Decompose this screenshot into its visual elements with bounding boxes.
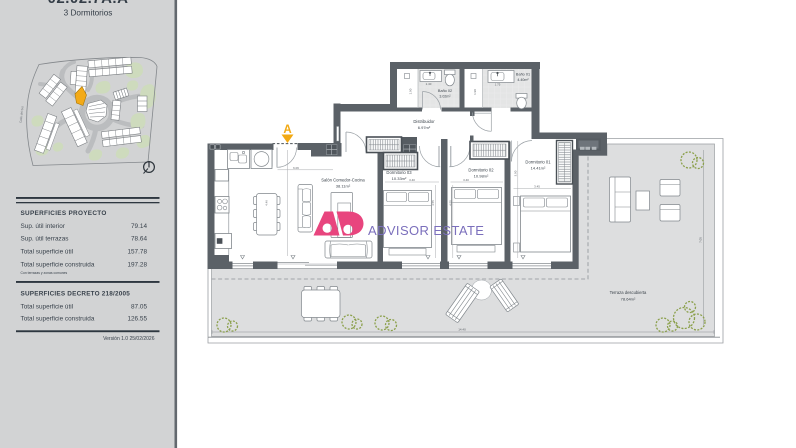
svg-text:3.40: 3.40 — [463, 178, 469, 182]
svg-text:7.05: 7.05 — [699, 237, 703, 243]
svg-text:Dormitorio 02: Dormitorio 02 — [468, 168, 494, 173]
svg-text:Dormitorio 03: Dormitorio 03 — [386, 170, 412, 175]
svg-text:Versión 1.0 25/02/2026: Versión 1.0 25/02/2026 — [103, 336, 155, 342]
svg-text:14.41m²: 14.41m² — [531, 166, 546, 171]
svg-text:Total superficie construida: Total superficie construida — [21, 262, 95, 269]
svg-text:126.55: 126.55 — [127, 316, 147, 323]
svg-text:3.45: 3.45 — [534, 185, 540, 189]
svg-text:Baño 01: Baño 01 — [516, 73, 530, 77]
svg-text:A: A — [283, 124, 291, 136]
svg-text:1.90: 1.90 — [409, 88, 413, 94]
svg-text:4.55: 4.55 — [449, 200, 453, 206]
svg-text:4.46: 4.46 — [265, 200, 269, 206]
svg-text:Total superficie útil: Total superficie útil — [21, 304, 74, 311]
svg-text:6.97m²: 6.97m² — [418, 125, 431, 130]
svg-text:SUPERFICIES PROYECTO: SUPERFICIES PROYECTO — [21, 210, 107, 217]
svg-text:79.14: 79.14 — [131, 223, 147, 230]
svg-text:87.05: 87.05 — [131, 304, 147, 311]
svg-text:Terraza descubierta: Terraza descubierta — [610, 290, 647, 295]
svg-text:3.02m²: 3.02m² — [439, 95, 451, 99]
svg-text:38.11m²: 38.11m² — [336, 184, 351, 189]
svg-text:10.33m²: 10.33m² — [392, 176, 407, 181]
svg-text:78.64: 78.64 — [131, 236, 147, 243]
svg-text:Sup. útil interior: Sup. útil interior — [21, 223, 66, 230]
svg-text:10.98m²: 10.98m² — [474, 174, 489, 179]
svg-text:SUPERFICIES DECRETO 218/2005: SUPERFICIES DECRETO 218/2005 — [21, 291, 131, 298]
svg-text:Distribuidor: Distribuidor — [413, 119, 435, 124]
svg-text:Total superficie útil: Total superficie útil — [21, 249, 74, 256]
svg-text:6.06: 6.06 — [293, 166, 299, 170]
svg-text:78.64m²: 78.64m² — [621, 297, 636, 302]
svg-text:Dormitorio 01: Dormitorio 01 — [525, 160, 551, 165]
svg-text:Total superficie construida: Total superficie construida — [21, 316, 95, 323]
svg-text:Salón Comedor-Cocina: Salón Comedor-Cocina — [321, 178, 365, 183]
svg-text:Baño 02: Baño 02 — [438, 89, 452, 93]
svg-text:4.55: 4.55 — [431, 200, 435, 206]
svg-text:197.28: 197.28 — [127, 262, 147, 269]
svg-text:157.78: 157.78 — [127, 249, 147, 256]
svg-text:3.40: 3.40 — [409, 178, 415, 182]
svg-text:Sup. útil terrazas: Sup. útil terrazas — [21, 236, 69, 243]
svg-text:Con terrazas y zonas comunes: Con terrazas y zonas comunes — [21, 271, 68, 275]
svg-text:4.40m²: 4.40m² — [517, 78, 529, 82]
svg-text:1.40: 1.40 — [426, 82, 432, 86]
svg-text:ADVISOR ESTATE: ADVISOR ESTATE — [368, 223, 484, 238]
svg-text:1.75: 1.75 — [495, 83, 501, 87]
svg-text:3.90: 3.90 — [514, 170, 518, 176]
svg-text:1.90: 1.90 — [473, 89, 477, 95]
svg-text:3 Dormitorios: 3 Dormitorios — [64, 8, 113, 17]
svg-text:14.40: 14.40 — [458, 328, 466, 332]
svg-text:02.02.7A.A: 02.02.7A.A — [48, 0, 129, 7]
